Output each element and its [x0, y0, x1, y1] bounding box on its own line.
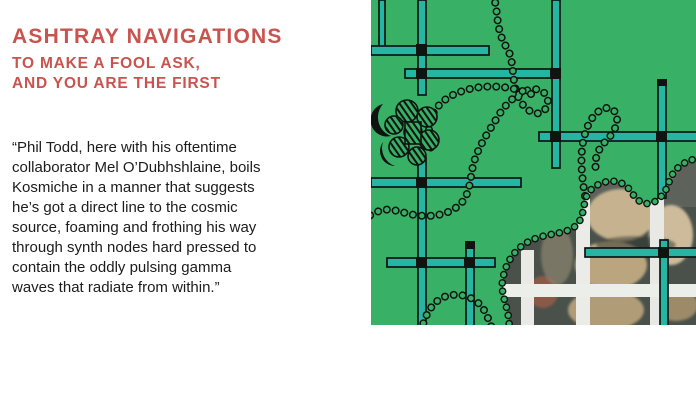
teal-bar: [379, 0, 385, 48]
text-column: ASHTRAY NAVIGATIONS TO MAKE A FOOL ASK, …: [12, 0, 357, 298]
review-quote: “Phil Todd, here with his oftentime coll…: [12, 138, 312, 298]
teal-bar: [539, 132, 696, 141]
page-title: ASHTRAY NAVIGATIONS: [12, 25, 357, 49]
teal-bar: [371, 46, 489, 55]
teal-bar: [466, 242, 474, 325]
album-cover-svg: [371, 0, 696, 325]
teal-bar: [585, 248, 696, 257]
teal-bar: [371, 178, 521, 187]
album-cover-art: [371, 0, 696, 325]
teal-bar: [405, 69, 557, 78]
teal-bar: [552, 0, 560, 168]
album-subtitle: TO MAKE A FOOL ASK, AND YOU ARE THE FIRS…: [12, 54, 357, 93]
page: ASHTRAY NAVIGATIONS TO MAKE A FOOL ASK, …: [0, 0, 696, 400]
teal-bar: [387, 258, 495, 267]
